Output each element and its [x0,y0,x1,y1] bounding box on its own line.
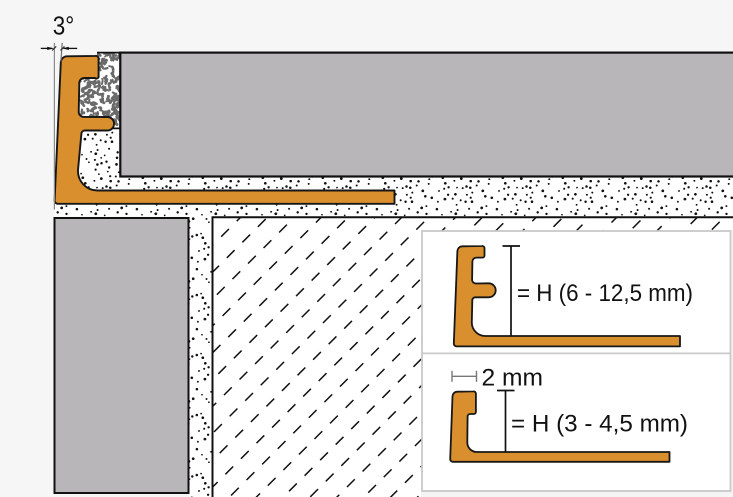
svg-text:= H (3 - 4,5 mm): = H (3 - 4,5 mm) [511,410,688,437]
svg-text:3°: 3° [53,13,75,41]
svg-text:= H (6 - 12,5 mm): = H (6 - 12,5 mm) [517,280,693,307]
svg-text:2 mm: 2 mm [482,364,544,391]
